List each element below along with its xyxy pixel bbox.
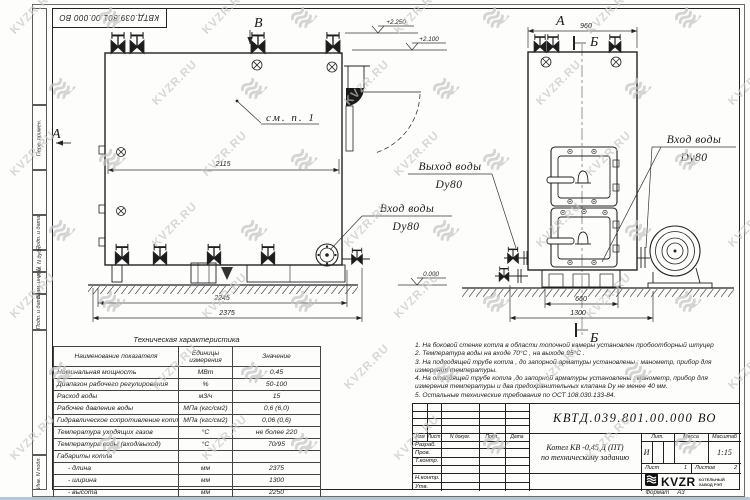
water-inlet-dn: Dy80: [392, 221, 420, 233]
note-line: 2. Температура воды на входе 70°С , на в…: [415, 350, 740, 358]
side-view: [88, 32, 421, 294]
column-header: Единицы измерения: [179, 347, 233, 367]
table-row: Номинальная мощностьМВт0,45: [54, 367, 321, 379]
signature-row: Утв.: [413, 483, 529, 491]
table-cell: [233, 451, 321, 463]
furnace-door-lower: [547, 208, 619, 267]
table-cell: Рабочее давление воды: [54, 403, 179, 415]
sheets-total: Листов 2: [691, 463, 741, 473]
table-cell: МПа (кгс/см2): [179, 403, 233, 415]
foundation: [542, 270, 620, 287]
elevation-2100: +2.100: [419, 36, 439, 43]
table-cell: [179, 451, 233, 463]
note-line: 5. Остальные технические требования по О…: [415, 392, 740, 400]
table-cell: 70/95: [233, 439, 321, 451]
table-cell: - длина: [54, 463, 179, 475]
table-cell: МВт: [179, 367, 233, 379]
format-value: А3: [677, 490, 684, 496]
table-cell: мм: [179, 463, 233, 475]
signature-row: Н.контр.: [413, 474, 529, 482]
sheets-value: 2: [734, 465, 737, 471]
kvzr-logo-text: KVZR: [661, 475, 696, 489]
see-note-callout: см. п. 1: [266, 112, 316, 124]
table-cell: Гидравлическое сопротивление котла: [54, 415, 179, 427]
revision-column-header: N докум.: [441, 434, 479, 440]
furnace-door-upper: [547, 147, 619, 206]
nozzle-cross-icons: [541, 57, 621, 67]
table-cell: мм: [179, 475, 233, 487]
table-cell: %: [179, 379, 233, 391]
table-cell: 2375: [233, 463, 321, 475]
mirrored-designation-stamp: КВТД.039.801.00.000 ВО: [52, 8, 167, 28]
table-row: Температура уходящих газов°Сне более 220: [54, 427, 321, 439]
table-cell: - ширина: [54, 475, 179, 487]
water-inlet-right-label: Вход воды: [667, 134, 722, 146]
revision-column-header: Дата: [505, 434, 529, 440]
valve-icons-top: [111, 32, 340, 53]
spec-table-title: Техническая характеристика: [53, 333, 320, 346]
inlet-pipe-right: [637, 247, 650, 268]
table-cell: Диапазон рабочего регулирования: [54, 379, 179, 391]
note-line: 1. На боковой стенке котла в области топ…: [415, 342, 740, 350]
note-line: 4. На отводящей трубе котла ,до запорной…: [415, 375, 740, 383]
sheet-value: 1: [684, 465, 687, 471]
ground-hatch: [88, 286, 358, 294]
dim-2375: 2375: [218, 310, 235, 317]
signature-row: Т.контр.: [413, 458, 529, 466]
scale-header: Масштаб: [708, 433, 741, 441]
inlet-flange: [316, 244, 338, 266]
revision-header: ИзмЛистN докум.Подп.Дата: [413, 433, 529, 441]
section-label-top: Б: [589, 35, 598, 50]
table-cell: 0,6 (6,0): [233, 403, 321, 415]
elevation-2250: +2.250: [386, 19, 406, 26]
column-header: Значение: [233, 347, 321, 367]
table-cell: Габариты котла: [54, 451, 179, 463]
table-row: - ширинамм1300: [54, 475, 321, 487]
lit-value: И: [641, 441, 652, 463]
valve-icon: [352, 248, 363, 264]
sheets-label: Листов: [695, 465, 715, 471]
product-name: Котел КВ -0,45 Д (ПТ) по техническому за…: [529, 433, 641, 473]
valve-icon: [499, 266, 509, 281]
signature-row: Разраб.: [413, 441, 529, 449]
signature-row: [413, 466, 529, 474]
table-row: Диапазон рабочего регулирования%50-100: [54, 379, 321, 391]
side-view-dimensions: [56, 26, 516, 322]
table-row: Расход водым3/ч15: [54, 391, 321, 403]
ground-hatch: [462, 289, 734, 297]
view-arrow-label-b: В: [254, 16, 263, 31]
sheet-label: Лист: [645, 465, 659, 471]
kvzr-logo: KVZR КОТЕЛЬНЫЙ ЗАВОД РЭП: [641, 473, 741, 491]
spec-table: Техническая характеристика Наименование …: [53, 333, 320, 499]
table-cell: 0,45: [233, 367, 321, 379]
revision-column-header: Изм: [413, 434, 427, 440]
table-cell: Номинальная мощность: [54, 367, 179, 379]
table-cell: 1300: [233, 475, 321, 487]
table-cell: 50-100: [233, 379, 321, 391]
table-cell: 15: [233, 391, 321, 403]
table-row: Рабочее давление водыМПа (кгс/см2)0,6 (6…: [54, 403, 321, 415]
nozzle-cross-icons: [117, 60, 338, 216]
sheet-number: Лист 1: [641, 463, 691, 473]
signature-row: Пров.: [413, 449, 529, 457]
table-cell: °С: [179, 427, 233, 439]
view-arrow-label-a: А: [51, 127, 61, 142]
drawing-sheet: Перв. примен. Подп. и дата Инв. N дубл. …: [0, 0, 750, 500]
side-pipe-assembly: [344, 66, 421, 153]
table-row: - длинамм2375: [54, 463, 321, 475]
product-name-line2: по техническому заданию: [541, 453, 629, 463]
table-row: Температура воды (вход/выход)°С70/95: [54, 439, 321, 451]
table-cell: м3/ч: [179, 391, 233, 403]
lit-header: Лит.: [641, 433, 674, 441]
front-view-title: А: [555, 14, 565, 29]
table-cell: °С: [179, 439, 233, 451]
note-line: измерения температуры.: [415, 367, 740, 375]
water-outlet-label: Выход воды: [419, 161, 482, 173]
table-cell: Расход воды: [54, 391, 179, 403]
document-designation: КВТД.039.801.00.000 ВО: [529, 404, 741, 433]
dim-660: 660: [575, 296, 587, 303]
scale-value: 1:15: [708, 441, 741, 463]
water-inlet-label: Вход воды: [380, 203, 435, 215]
dim-2245: 2245: [213, 295, 230, 302]
mirrored-designation-text: КВТД.039.801.00.000 ВО: [59, 13, 159, 22]
water-outlet-dn: Dy80: [435, 179, 463, 191]
notes: 1. На боковой стенке котла в области топ…: [415, 342, 740, 400]
table-cell: МПа (кгс/см2): [179, 415, 233, 427]
title-block: КВТД.039.801.00.000 ВО Котел КВ -0,45 Д …: [412, 403, 740, 490]
spec-table-header-row: Наименование показателя Единицы измерени…: [54, 347, 321, 367]
mass-header: Масса: [674, 433, 708, 441]
table-cell: 0,06 (0,6): [233, 415, 321, 427]
front-view-dimensions: [510, 27, 736, 322]
format-note: ФорматА3: [600, 490, 730, 497]
note-line: 3. На подводящей трубе котла , до запорн…: [415, 359, 740, 367]
blower-fan: [648, 226, 712, 288]
water-inlet-right-dn: Dy80: [680, 152, 708, 164]
valve-icon: [508, 247, 519, 263]
revision-column-header: Подп.: [479, 434, 505, 440]
table-row: Гидравлическое сопротивление котлаМПа (к…: [54, 415, 321, 427]
table-cell: Температура уходящих газов: [54, 427, 179, 439]
table-cell: Температура воды (вход/выход): [54, 439, 179, 451]
table-row: Габариты котла: [54, 451, 321, 463]
dim-1300: 1300: [570, 310, 586, 317]
kvzr-logo-subtext: КОТЕЛЬНЫЙ ЗАВОД РЭП: [699, 477, 725, 487]
front-view: [462, 34, 734, 337]
dim-2115: 2115: [214, 161, 230, 168]
column-header: Наименование показателя: [54, 347, 179, 367]
table-cell: не более 220: [233, 427, 321, 439]
signature-rows: Разраб.Пров.Т.контр.Н.контр.Утв.: [413, 441, 529, 491]
dim-960: 960: [580, 23, 592, 30]
note-line: измерения температуры и два предохраните…: [415, 383, 740, 391]
valve-icons-bottom: [116, 244, 275, 264]
kvzr-wave-icon: [645, 473, 658, 491]
format-label: Формат: [645, 490, 669, 496]
product-name-line1: Котел КВ -0,45 Д (ПТ): [546, 443, 623, 453]
elevation-0000: 0.000: [423, 271, 439, 278]
spec-table-body: Номинальная мощностьМВт0,45Диапазон рабо…: [54, 367, 321, 499]
revision-column-header: Лист: [427, 434, 441, 440]
